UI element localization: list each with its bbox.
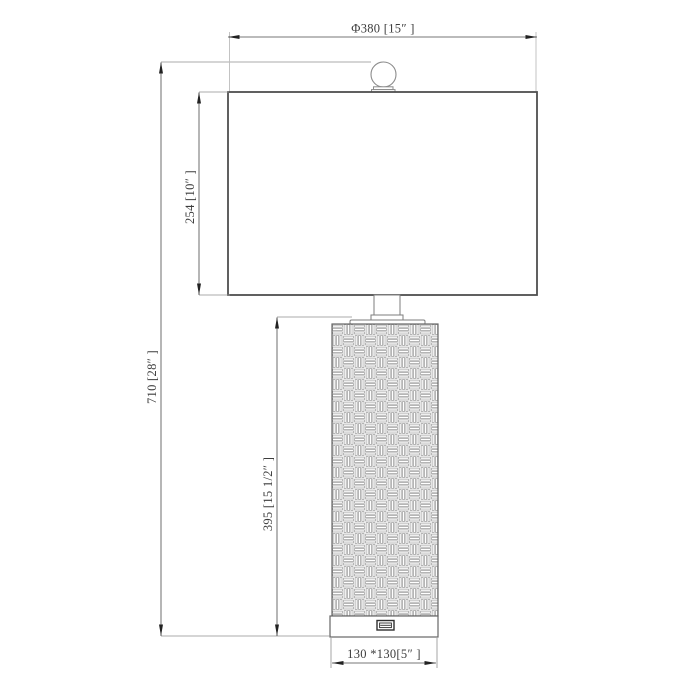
lamp-shade	[228, 92, 537, 295]
dim-shade-height: 254 [10″ ]	[183, 92, 230, 295]
finial-ball	[371, 62, 396, 87]
dim-label-base-size: 130 *130[5″ ]	[347, 647, 421, 661]
dim-label-shade-diameter: Φ380 [15″ ]	[351, 22, 414, 36]
dim-label-body-height: 395 [15 1/2″ ]	[261, 457, 275, 531]
neck-stem	[374, 295, 400, 315]
dim-base-size: 130 *130[5″ ]	[331, 638, 437, 668]
lamp-figure	[228, 62, 537, 637]
neck-collar	[371, 315, 403, 320]
lamp-body	[332, 324, 438, 616]
drawing-svg: 710 [28″ ] 254 [10″ ] Φ380 [15″ ]	[0, 0, 700, 700]
lamp-dimension-drawing: 710 [28″ ] 254 [10″ ] Φ380 [15″ ]	[0, 0, 700, 700]
dim-label-shade-height: 254 [10″ ]	[183, 170, 197, 224]
dim-label-overall-height: 710 [28″ ]	[145, 350, 159, 404]
usb-port-icon	[377, 621, 394, 631]
